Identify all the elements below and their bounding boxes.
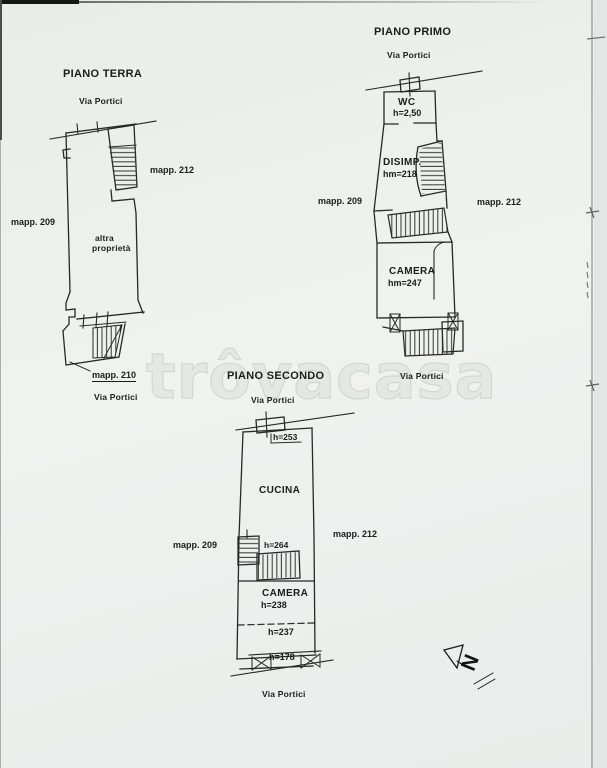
floorplan-linework xyxy=(0,0,607,768)
piano-primo-parcel-right: mapp. 212 xyxy=(477,197,521,207)
piano-secondo-room-cucina: CUCINA xyxy=(259,485,300,497)
piano-secondo-height-top: h=253 xyxy=(273,433,297,443)
piano-primo-street-bottom: Via Portici xyxy=(400,372,444,382)
piano-secondo-camera-height: h=238 xyxy=(261,600,287,610)
piano-terra-parcel-right: mapp. 212 xyxy=(150,165,194,175)
piano-terra-parcel-bottom: mapp. 210 xyxy=(92,370,136,382)
piano-terra-title: PIANO TERRA xyxy=(63,68,142,81)
piano-primo-camera-height: hm=247 xyxy=(388,278,422,288)
piano-secondo-street-bottom: Via Portici xyxy=(262,690,306,700)
piano-primo-room-camera: CAMERA xyxy=(389,266,435,278)
scanned-floorplan-page: trôvacasa xyxy=(0,0,607,768)
piano-primo-title: PIANO PRIMO xyxy=(374,26,451,39)
piano-terra-area-line2: proprietà xyxy=(92,244,131,254)
piano-secondo-room-camera: CAMERA xyxy=(262,588,308,600)
piano-primo-disimp-height: hm=218 xyxy=(383,169,417,179)
piano-secondo-parcel-left: mapp. 209 xyxy=(173,540,217,550)
piano-primo-parcel-left: mapp. 209 xyxy=(318,196,362,206)
piano-primo-street-top: Via Portici xyxy=(387,51,431,61)
piano-terra-street-bottom: Via Portici xyxy=(94,393,138,403)
piano-secondo-height-bottom: h=178 xyxy=(269,652,295,662)
piano-primo-wc-height: h=2,50 xyxy=(393,108,421,118)
piano-secondo-title: PIANO SECONDO xyxy=(227,370,324,383)
piano-terra-street-top: Via Portici xyxy=(79,97,123,107)
piano-primo-drawing xyxy=(366,71,482,356)
piano-secondo-parcel-right: mapp. 212 xyxy=(333,529,377,539)
fold-line xyxy=(586,0,605,768)
piano-terra-parcel-left: mapp. 209 xyxy=(11,217,55,227)
piano-primo-room-disimp: DISIMP. xyxy=(383,157,422,169)
piano-secondo-street-top: Via Portici xyxy=(251,396,295,406)
piano-secondo-height-mid: h=237 xyxy=(268,627,294,637)
piano-secondo-stair-height: h=264 xyxy=(264,541,288,551)
piano-primo-room-wc: WC xyxy=(398,97,415,109)
